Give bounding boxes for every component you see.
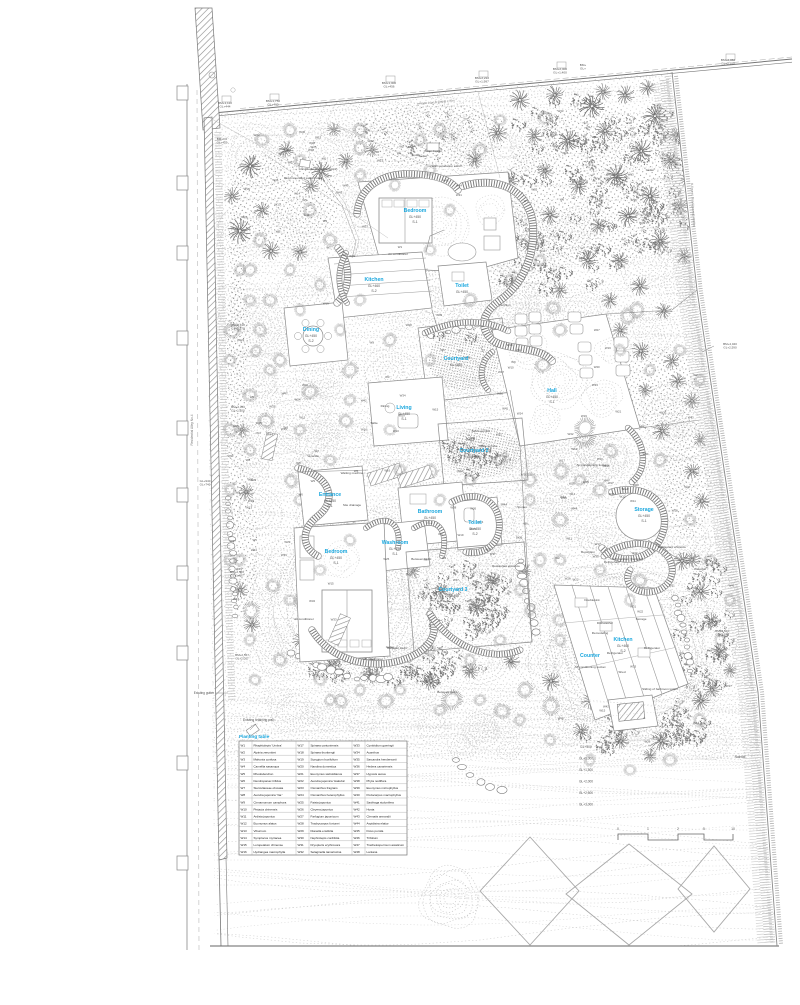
svg-text:W42: W42 xyxy=(443,178,449,182)
svg-text:W46: W46 xyxy=(633,190,639,194)
svg-text:GL+456: GL+456 xyxy=(383,85,394,89)
svg-text:W5: W5 xyxy=(323,219,328,223)
svg-text:Sarcandra hendersonii: Sarcandra hendersonii xyxy=(367,758,398,762)
svg-text:W32: W32 xyxy=(298,850,305,854)
svg-text:W10: W10 xyxy=(457,469,463,473)
svg-text:W12: W12 xyxy=(254,133,260,137)
svg-text:GL+450: GL+450 xyxy=(324,499,336,503)
svg-text:S-2: S-2 xyxy=(620,649,625,653)
svg-text:W29: W29 xyxy=(298,829,305,833)
svg-text:W47: W47 xyxy=(409,145,415,149)
svg-text:W6: W6 xyxy=(645,131,650,135)
svg-text:S-1: S-1 xyxy=(333,561,338,565)
svg-text:GL+450: GL+450 xyxy=(409,215,421,219)
svg-text:W17: W17 xyxy=(726,684,732,688)
svg-text:Bathroom: Bathroom xyxy=(418,509,443,515)
svg-text:W39: W39 xyxy=(516,535,522,539)
svg-text:Trifolium: Trifolium xyxy=(367,836,379,840)
svg-text:W45: W45 xyxy=(236,567,242,571)
svg-text:W39: W39 xyxy=(349,254,355,258)
svg-text:GL+2,000: GL+2,000 xyxy=(579,780,593,784)
svg-text:W4: W4 xyxy=(241,765,246,769)
svg-text:Air conditioner: Air conditioner xyxy=(294,617,314,621)
svg-text:W18: W18 xyxy=(298,750,305,754)
svg-text:W7: W7 xyxy=(693,373,698,377)
svg-text:W13: W13 xyxy=(571,447,577,451)
svg-text:W44: W44 xyxy=(354,822,361,826)
svg-text:Kitchen: Kitchen xyxy=(613,637,632,643)
svg-text:W17: W17 xyxy=(608,481,614,485)
svg-text:W13: W13 xyxy=(246,506,252,510)
svg-text:W25: W25 xyxy=(383,557,389,561)
svg-text:W47: W47 xyxy=(282,392,288,396)
svg-text:W18: W18 xyxy=(672,508,678,512)
svg-text:W28: W28 xyxy=(233,424,239,428)
svg-text:Lantana: Lantana xyxy=(367,850,378,854)
svg-text:Refrigerator: Refrigerator xyxy=(644,646,660,650)
svg-text:Cinnamomum camphora: Cinnamomum camphora xyxy=(254,800,287,804)
svg-text:W39: W39 xyxy=(639,221,645,225)
svg-text:GL+460: GL+460 xyxy=(267,103,278,107)
svg-text:GL+2,570: GL+2,570 xyxy=(231,327,245,331)
svg-text:W6: W6 xyxy=(241,779,246,783)
svg-text:Recommended switchboard: Recommended switchboard xyxy=(284,176,323,180)
svg-text:Bedroom: Bedroom xyxy=(325,549,348,555)
svg-text:W18: W18 xyxy=(406,323,412,327)
svg-text:W44: W44 xyxy=(693,721,699,725)
svg-text:W23: W23 xyxy=(377,158,383,162)
svg-text:W43: W43 xyxy=(336,191,342,195)
svg-text:W22: W22 xyxy=(278,152,284,156)
svg-text:Viburnum: Viburnum xyxy=(254,829,267,833)
svg-text:W43: W43 xyxy=(354,815,361,819)
svg-text:W21: W21 xyxy=(298,772,305,776)
svg-text:W35: W35 xyxy=(604,176,610,180)
svg-text:W10: W10 xyxy=(508,365,514,369)
svg-text:W1: W1 xyxy=(241,743,246,747)
svg-text:W36: W36 xyxy=(521,473,527,477)
svg-text:W16: W16 xyxy=(605,346,611,350)
svg-text:Hedera canariensis: Hedera canariensis xyxy=(367,765,393,769)
svg-text:Toilet: Toilet xyxy=(455,283,469,289)
svg-text:W43: W43 xyxy=(507,343,513,347)
svg-text:Aucuba japonica 'Var.': Aucuba japonica 'Var.' xyxy=(254,793,284,797)
svg-text:GL+1,500: GL+1,500 xyxy=(579,768,593,772)
svg-text:S-1: S-1 xyxy=(641,519,646,523)
svg-text:Site drainage: Site drainage xyxy=(343,503,362,507)
svg-text:W36: W36 xyxy=(272,178,278,182)
svg-text:W1: W1 xyxy=(398,245,403,249)
svg-text:W46: W46 xyxy=(561,496,567,500)
svg-text:Dendropanax trifidus: Dendropanax trifidus xyxy=(254,779,282,783)
svg-text:W47: W47 xyxy=(498,370,504,374)
svg-text:W42: W42 xyxy=(640,425,646,429)
svg-text:W31: W31 xyxy=(281,553,287,557)
svg-text:W19: W19 xyxy=(298,758,305,762)
svg-text:W5: W5 xyxy=(253,538,258,542)
svg-text:GL+460: GL+460 xyxy=(617,644,629,648)
svg-text:W19: W19 xyxy=(323,302,329,306)
svg-text:W44: W44 xyxy=(501,503,507,507)
svg-text:Table: Table xyxy=(370,421,378,425)
svg-text:W13: W13 xyxy=(275,202,281,206)
svg-text:W26: W26 xyxy=(241,215,247,219)
svg-text:W5: W5 xyxy=(302,198,307,202)
svg-text:Courtyard: Courtyard xyxy=(444,356,469,362)
svg-text:Sterculiaceae obovata: Sterculiaceae obovata xyxy=(254,786,284,790)
svg-text:Alpinia zerumbet: Alpinia zerumbet xyxy=(254,750,277,754)
svg-text:W26: W26 xyxy=(470,507,476,511)
svg-text:Courtyard 2: Courtyard 2 xyxy=(459,448,488,454)
svg-text:Counter: Counter xyxy=(580,653,600,659)
svg-text:W7: W7 xyxy=(241,786,246,790)
svg-text:Gutter: Gutter xyxy=(386,645,395,649)
svg-text:W26: W26 xyxy=(562,151,568,155)
svg-text:W33: W33 xyxy=(630,664,636,668)
svg-text:W34: W34 xyxy=(251,548,257,552)
svg-text:GL+450: GL+450 xyxy=(450,363,462,367)
svg-text:10: 10 xyxy=(731,827,735,831)
svg-text:W2: W2 xyxy=(236,491,241,495)
svg-text:Pistacia chinensis: Pistacia chinensis xyxy=(254,807,278,811)
svg-text:GL+500: GL+500 xyxy=(580,745,592,749)
svg-text:W41: W41 xyxy=(729,584,735,588)
svg-text:Reception: Reception xyxy=(581,550,595,554)
svg-text:GL+740: GL+740 xyxy=(200,483,211,487)
svg-text:W18: W18 xyxy=(244,187,250,191)
svg-text:W7: W7 xyxy=(326,245,331,249)
svg-text:S-1: S-1 xyxy=(392,552,397,556)
svg-text:W37: W37 xyxy=(230,539,236,543)
svg-text:W23: W23 xyxy=(298,786,305,790)
svg-text:W33: W33 xyxy=(593,554,599,558)
svg-text:Between beds: Between beds xyxy=(437,690,457,694)
svg-text:Hosta: Hosta xyxy=(367,807,375,811)
svg-text:W15: W15 xyxy=(256,421,262,425)
svg-text:W15: W15 xyxy=(241,843,248,847)
svg-text:W39: W39 xyxy=(354,786,361,790)
svg-text:W16: W16 xyxy=(361,428,367,432)
svg-text:Gutter: Gutter xyxy=(646,168,655,172)
svg-text:W3: W3 xyxy=(276,230,281,234)
svg-text:W15: W15 xyxy=(328,582,334,586)
svg-text:W2: W2 xyxy=(232,482,237,486)
svg-text:W8: W8 xyxy=(246,458,251,462)
svg-text:W8: W8 xyxy=(241,793,246,797)
svg-text:A/C outdoor (hanging): A/C outdoor (hanging) xyxy=(613,557,643,561)
svg-text:W16: W16 xyxy=(384,468,390,472)
svg-text:Residential Alley No.4: Residential Alley No.4 xyxy=(190,414,194,445)
svg-text:W33: W33 xyxy=(633,211,639,215)
svg-text:Aucuba japonica 'Hakuba': Aucuba japonica 'Hakuba' xyxy=(311,779,346,783)
svg-text:GL+1,997: GL+1,997 xyxy=(475,80,489,84)
svg-text:W14: W14 xyxy=(456,183,462,187)
svg-text:W9: W9 xyxy=(241,800,246,804)
svg-text:W25: W25 xyxy=(583,480,589,484)
svg-text:W17: W17 xyxy=(288,160,294,164)
svg-text:W9: W9 xyxy=(311,479,316,483)
svg-text:Veranda: Veranda xyxy=(307,454,319,458)
svg-text:W5: W5 xyxy=(399,145,404,149)
svg-text:W27: W27 xyxy=(362,224,368,228)
svg-text:Entrance: Entrance xyxy=(319,492,341,498)
svg-text:S-1: S-1 xyxy=(401,417,406,421)
svg-text:W33: W33 xyxy=(331,617,337,621)
svg-text:Fatsia japonica: Fatsia japonica xyxy=(311,800,332,804)
svg-text:GL+460: GL+460 xyxy=(368,284,380,288)
svg-text:Cleyera japonica: Cleyera japonica xyxy=(311,807,334,811)
svg-text:W17: W17 xyxy=(298,743,305,747)
svg-text:Conditioner entry (for future): Conditioner entry (for future) xyxy=(299,167,338,171)
svg-text:Spiraea thunbergii: Spiraea thunbergii xyxy=(311,750,336,754)
svg-text:1: 1 xyxy=(647,827,649,831)
svg-text:Mahonia confusa: Mahonia confusa xyxy=(254,758,277,762)
svg-text:Waiting machine: Waiting machine xyxy=(341,471,364,475)
svg-text:W31: W31 xyxy=(248,477,254,481)
svg-text:W3: W3 xyxy=(385,375,390,379)
svg-text:W33: W33 xyxy=(592,383,598,387)
svg-text:S-2: S-2 xyxy=(308,339,313,343)
svg-text:W7: W7 xyxy=(586,253,591,257)
svg-text:Remodeling: Remodeling xyxy=(592,631,609,635)
svg-text:Euonymus alatus: Euonymus alatus xyxy=(254,822,278,826)
svg-text:GL+450: GL+450 xyxy=(398,412,410,416)
svg-text:W19: W19 xyxy=(581,414,587,418)
svg-text:W48: W48 xyxy=(633,483,639,487)
svg-text:W5: W5 xyxy=(354,469,359,473)
svg-text:W21: W21 xyxy=(615,409,621,413)
svg-text:Podocarpus macrophyllus: Podocarpus macrophyllus xyxy=(367,793,402,797)
svg-text:GL+1,407: GL+1,407 xyxy=(230,574,244,578)
svg-text:W48: W48 xyxy=(354,850,361,854)
svg-text:Shed: Shed xyxy=(618,670,626,674)
svg-text:W20: W20 xyxy=(594,365,600,369)
svg-text:W31: W31 xyxy=(456,193,462,197)
svg-text:Trachycarpus fortunei: Trachycarpus fortunei xyxy=(311,822,340,826)
svg-text:GL+2,500: GL+2,500 xyxy=(579,791,593,795)
svg-text:W14: W14 xyxy=(250,157,256,161)
svg-text:Farfugium japonicum: Farfugium japonicum xyxy=(311,815,340,819)
svg-text:Doublesink: Doublesink xyxy=(584,598,600,602)
svg-text:W34: W34 xyxy=(285,148,291,152)
svg-text:W13: W13 xyxy=(315,136,321,140)
svg-text:GL+444: GL+444 xyxy=(219,105,230,109)
svg-text:W29: W29 xyxy=(565,577,571,581)
svg-text:W30: W30 xyxy=(298,836,305,840)
svg-text:W41: W41 xyxy=(502,406,508,410)
svg-text:W10: W10 xyxy=(626,121,632,125)
svg-text:W26: W26 xyxy=(421,680,427,684)
svg-text:W6: W6 xyxy=(523,521,528,525)
svg-text:W31: W31 xyxy=(643,452,649,456)
svg-text:Symplocos myrtacea: Symplocos myrtacea xyxy=(254,836,282,840)
svg-text:W38: W38 xyxy=(248,499,254,503)
svg-text:Air conditioner: Air conditioner xyxy=(388,252,408,256)
svg-text:S-1: S-1 xyxy=(327,504,332,508)
svg-text:W32: W32 xyxy=(605,206,611,210)
svg-text:Aspidistra elatior: Aspidistra elatior xyxy=(367,822,389,826)
svg-text:W38: W38 xyxy=(354,779,361,783)
svg-text:W8: W8 xyxy=(592,135,597,139)
svg-text:W31: W31 xyxy=(630,605,636,609)
svg-text:GL+450: GL+450 xyxy=(638,514,650,518)
svg-text:GL+459: GL+459 xyxy=(217,141,228,145)
svg-text:W14: W14 xyxy=(294,191,300,195)
svg-text:Restaurant entrance: Restaurant entrance xyxy=(658,545,686,549)
svg-text:Washroom: Washroom xyxy=(382,540,409,546)
svg-text:W25: W25 xyxy=(298,800,305,804)
svg-text:S-1: S-1 xyxy=(549,400,554,404)
svg-text:W24: W24 xyxy=(295,397,301,401)
svg-text:W22: W22 xyxy=(238,338,244,342)
svg-text:Hydrangea macrophylla: Hydrangea macrophylla xyxy=(254,850,286,854)
svg-text:W39: W39 xyxy=(406,572,412,576)
svg-text:W20: W20 xyxy=(302,383,308,387)
svg-text:W27: W27 xyxy=(594,328,600,332)
svg-text:W4: W4 xyxy=(256,431,261,435)
svg-text:S-2: S-2 xyxy=(371,289,376,293)
svg-text:2: 2 xyxy=(677,827,679,831)
svg-text:Euonymus sieboldianus: Euonymus sieboldianus xyxy=(311,772,343,776)
svg-text:GL+3,000: GL+3,000 xyxy=(579,803,593,807)
svg-text:W34: W34 xyxy=(400,394,406,398)
svg-text:W5: W5 xyxy=(250,395,255,399)
svg-text:Courtyard 3: Courtyard 3 xyxy=(438,587,467,593)
svg-text:W39: W39 xyxy=(436,313,442,317)
svg-text:W2: W2 xyxy=(241,750,246,754)
svg-text:W15: W15 xyxy=(508,661,514,665)
svg-text:Living: Living xyxy=(396,405,411,411)
svg-text:S-2: S-2 xyxy=(427,521,432,525)
svg-text:Hall: Hall xyxy=(547,388,557,394)
svg-text:GL+450: GL+450 xyxy=(468,455,480,459)
svg-text:W43: W43 xyxy=(343,183,349,187)
svg-text:W20: W20 xyxy=(298,765,305,769)
svg-text:Wall separation switch: Wall separation switch xyxy=(432,164,463,168)
svg-text:Dining: Dining xyxy=(381,404,390,408)
svg-text:W9: W9 xyxy=(438,532,443,536)
svg-text:W24: W24 xyxy=(298,793,305,797)
svg-text:W17: W17 xyxy=(453,578,459,582)
svg-text:W7: W7 xyxy=(315,449,320,453)
svg-text:W2: W2 xyxy=(428,607,433,611)
svg-text:Toilet: Toilet xyxy=(468,520,482,526)
svg-text:W17: W17 xyxy=(423,558,429,562)
svg-text:W6: W6 xyxy=(440,348,445,352)
svg-text:S-2: S-2 xyxy=(472,532,477,536)
svg-text:Restaurant entrance: Restaurant entrance xyxy=(492,564,520,568)
svg-text:Storage: Storage xyxy=(636,617,647,621)
svg-text:W26: W26 xyxy=(569,482,575,486)
svg-text:Syzygium buxifolium: Syzygium buxifolium xyxy=(311,758,339,762)
svg-text:W42: W42 xyxy=(468,437,474,441)
svg-text:Acanthus: Acanthus xyxy=(367,750,380,754)
svg-text:W33: W33 xyxy=(558,109,564,113)
svg-text:GL+1,000: GL+1,000 xyxy=(579,757,593,761)
svg-text:W12: W12 xyxy=(620,494,626,498)
svg-text:W42: W42 xyxy=(354,807,361,811)
svg-text:W27: W27 xyxy=(485,547,491,551)
svg-text:W32: W32 xyxy=(568,432,574,436)
svg-text:W30: W30 xyxy=(644,154,650,158)
svg-text:Loropetalum chinense: Loropetalum chinense xyxy=(254,843,284,847)
svg-text:W15: W15 xyxy=(432,408,438,412)
svg-text:W17: W17 xyxy=(595,542,601,546)
svg-text:0: 0 xyxy=(617,827,619,831)
svg-text:W10: W10 xyxy=(241,807,248,811)
svg-text:Stones: Stones xyxy=(517,505,527,509)
svg-text:W4: W4 xyxy=(284,426,289,430)
svg-text:W37: W37 xyxy=(354,772,361,776)
svg-text:GL+450: GL+450 xyxy=(546,395,558,399)
svg-text:Spiraea cantoniensis: Spiraea cantoniensis xyxy=(311,743,339,747)
svg-text:W10: W10 xyxy=(393,429,399,433)
svg-text:Waterfall: Waterfall xyxy=(694,567,706,571)
svg-text:W11: W11 xyxy=(566,537,572,541)
svg-text:GL+450: GL+450 xyxy=(447,594,459,598)
svg-text:W42: W42 xyxy=(603,705,609,709)
svg-text:W32: W32 xyxy=(309,599,315,603)
svg-text:W45: W45 xyxy=(354,829,361,833)
svg-text:Water heater: Water heater xyxy=(424,149,442,153)
svg-text:W13: W13 xyxy=(241,829,248,833)
svg-text:W22: W22 xyxy=(573,577,579,581)
svg-text:W11: W11 xyxy=(241,815,247,819)
svg-text:W5: W5 xyxy=(241,772,246,776)
svg-text:W32: W32 xyxy=(496,432,502,436)
svg-text:Air conditioning socket: Air conditioning socket xyxy=(575,665,606,669)
svg-text:W5: W5 xyxy=(630,126,635,130)
svg-text:W46: W46 xyxy=(354,836,361,840)
svg-text:W15: W15 xyxy=(299,416,305,420)
svg-text:W2: W2 xyxy=(657,103,662,107)
svg-text:W11: W11 xyxy=(569,492,575,496)
svg-text:Nephrolepis cordifolia: Nephrolepis cordifolia xyxy=(311,836,340,840)
svg-text:Dianella ensifolia: Dianella ensifolia xyxy=(311,829,334,833)
svg-text:W47: W47 xyxy=(233,597,239,601)
svg-text:GL+450: GL+450 xyxy=(469,527,481,531)
svg-text:GL+450: GL+450 xyxy=(305,334,317,338)
svg-text:5: 5 xyxy=(703,827,705,831)
svg-text:Ardisia japonica: Ardisia japonica xyxy=(254,815,276,819)
svg-text:W44: W44 xyxy=(571,506,577,510)
svg-text:W9: W9 xyxy=(370,341,375,345)
svg-text:W33: W33 xyxy=(269,404,275,408)
svg-text:W19: W19 xyxy=(458,533,464,537)
svg-text:Cushion: Cushion xyxy=(499,303,511,307)
svg-text:W28: W28 xyxy=(298,822,305,826)
svg-text:W22: W22 xyxy=(637,610,643,614)
svg-text:W26: W26 xyxy=(298,807,305,811)
svg-text:GL+1,300: GL+1,300 xyxy=(231,409,245,413)
svg-text:Phyla nodiflora: Phyla nodiflora xyxy=(367,779,387,783)
svg-text:W24: W24 xyxy=(517,411,523,415)
svg-text:GL+2,350: GL+2,350 xyxy=(721,62,735,66)
svg-text:Rhododendron: Rhododendron xyxy=(254,772,274,776)
svg-text:Planting table: Planting table xyxy=(239,734,270,739)
svg-text:W14: W14 xyxy=(516,348,522,352)
svg-text:GL+: GL+ xyxy=(580,67,586,71)
svg-text:W8: W8 xyxy=(296,461,301,465)
svg-text:W48: W48 xyxy=(558,717,564,721)
svg-text:Ficus pumila: Ficus pumila xyxy=(367,829,384,833)
svg-text:Nandina domestica: Nandina domestica xyxy=(311,765,337,769)
svg-text:Sliding of bathroom locker: Sliding of bathroom locker xyxy=(642,687,678,691)
svg-text:W37: W37 xyxy=(490,552,496,556)
svg-text:W44: W44 xyxy=(539,249,545,253)
svg-text:W4: W4 xyxy=(397,151,402,155)
svg-text:W6: W6 xyxy=(560,198,565,202)
